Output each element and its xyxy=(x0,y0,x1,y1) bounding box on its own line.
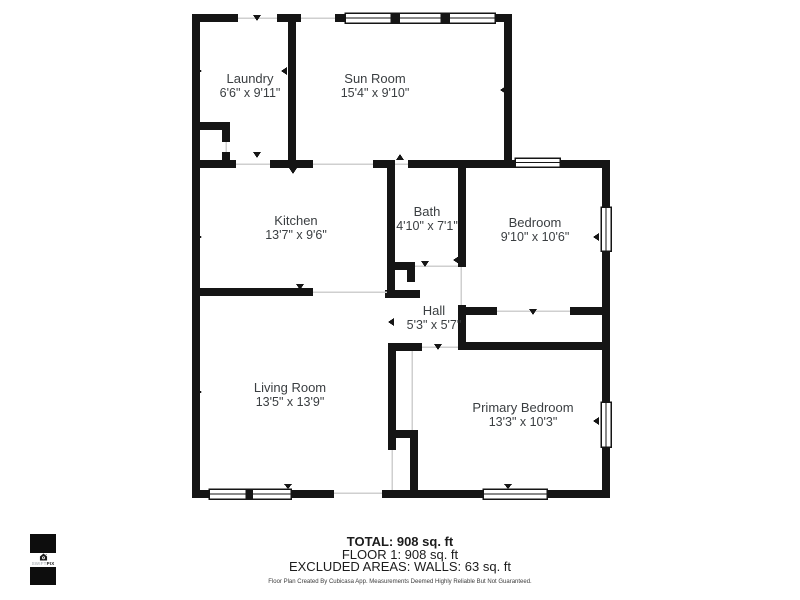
room-name: Bedroom xyxy=(501,215,570,230)
room-dimensions: 9'10" x 10'6" xyxy=(501,230,570,245)
room-label-bath: Bath 4'10" x 7'1" xyxy=(396,204,458,234)
room-name: Kitchen xyxy=(265,213,327,228)
room-dimensions: 13'3" x 10'3" xyxy=(472,415,573,430)
room-label-bedroom: Bedroom 9'10" x 10'6" xyxy=(501,215,570,245)
logo-block-top xyxy=(30,534,56,553)
brand-name: SWIFTPIX xyxy=(32,561,55,566)
room-name: Hall xyxy=(407,303,462,318)
room-name: Laundry xyxy=(220,71,281,86)
floor-plan-page: Laundry 6'6" x 9'11" Sun Room 15'4" x 9'… xyxy=(0,0,800,600)
room-name: Bath xyxy=(396,204,458,219)
room-name: Living Room xyxy=(254,380,326,395)
room-label-hall: Hall 5'3" x 5'7" xyxy=(407,303,462,333)
logo-center: SWIFTPIX xyxy=(30,553,56,567)
room-dimensions: 15'4" x 9'10" xyxy=(341,86,410,101)
room-name: Primary Bedroom xyxy=(472,400,573,415)
room-dimensions: 5'3" x 5'7" xyxy=(407,318,462,333)
room-dimensions: 13'7" x 9'6" xyxy=(265,228,327,243)
room-label-living-room: Living Room 13'5" x 13'9" xyxy=(254,380,326,410)
brand-logo: SWIFTPIX xyxy=(30,534,56,585)
room-label-kitchen: Kitchen 13'7" x 9'6" xyxy=(265,213,327,243)
logo-block-bottom xyxy=(30,567,56,585)
room-label-primary-bedroom: Primary Bedroom 13'3" x 10'3" xyxy=(472,400,573,430)
room-label-laundry: Laundry 6'6" x 9'11" xyxy=(220,71,281,101)
room-dimensions: 13'5" x 13'9" xyxy=(254,395,326,410)
excluded-area-text: EXCLUDED AREAS: WALLS: 63 sq. ft xyxy=(0,559,800,574)
room-dimensions: 4'10" x 7'1" xyxy=(396,219,458,234)
room-label-sun-room: Sun Room 15'4" x 9'10" xyxy=(341,71,410,101)
room-name: Sun Room xyxy=(341,71,410,86)
room-dimensions: 6'6" x 9'11" xyxy=(220,86,281,101)
house-icon xyxy=(39,553,48,561)
disclaimer-text: Floor Plan Created By Cubicasa App. Meas… xyxy=(0,579,800,585)
